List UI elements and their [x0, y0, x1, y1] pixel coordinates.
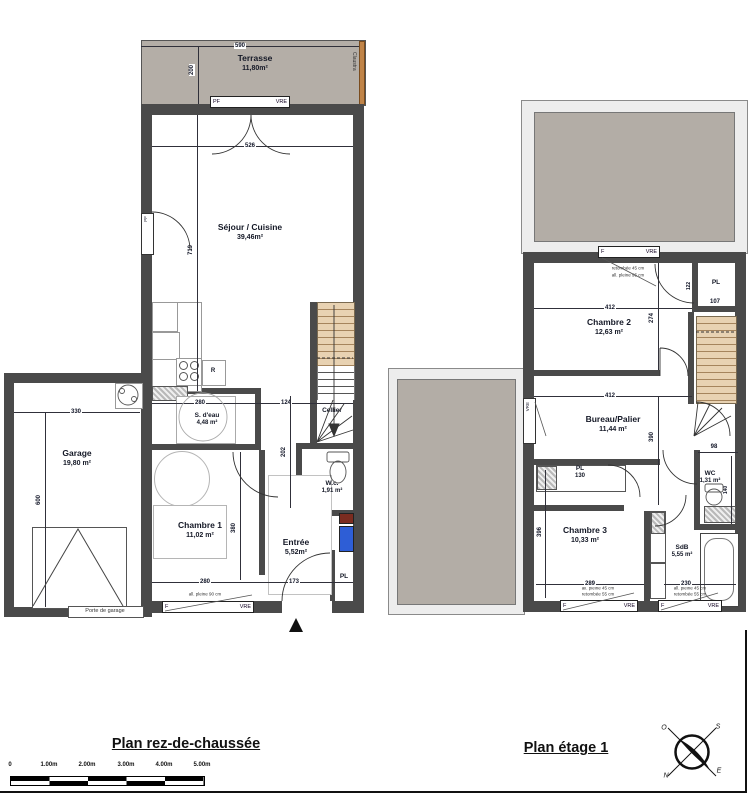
dimension-line	[197, 115, 198, 391]
room-label-chambre2: Chambre 2 12,63 m²	[587, 317, 631, 337]
window-type: F	[165, 604, 168, 610]
window-shutter: VRE	[708, 603, 719, 609]
closet-dim: 130	[575, 473, 585, 481]
room-label-cellier: Cellier	[322, 407, 342, 415]
window-chambre2: F VRE	[598, 246, 660, 258]
window-chambre3: F VRE	[560, 600, 638, 612]
sheet-border	[745, 630, 747, 793]
dimension-label: 200	[189, 64, 195, 76]
roof-slab	[397, 379, 516, 605]
dimension-label: 396	[537, 526, 543, 538]
room-label-sdb: SdB 5,55 m²	[672, 544, 693, 560]
dimension-label: 280	[194, 400, 206, 406]
water-heater-box	[115, 383, 143, 409]
room-name: Garage	[62, 448, 91, 459]
dimension-label: 98	[710, 444, 719, 450]
partition-wall	[694, 524, 740, 530]
floorplan-sheet: Claustra 590 200 Terrasse 11,80m² Cellie…	[0, 0, 754, 800]
garage-door-label: Porte de garage	[85, 608, 124, 614]
oven	[152, 302, 178, 332]
claustra-label: Claustra	[351, 52, 357, 71]
room-name: Cellier	[322, 407, 342, 415]
dimension-label: 122	[686, 281, 692, 291]
dimension-label: 719	[188, 244, 194, 256]
room-area: 5,52m²	[283, 548, 309, 557]
room-name: Terrasse	[238, 53, 273, 64]
claustra-screen	[359, 41, 365, 105]
dimension-label: 202	[281, 446, 287, 458]
room-name: Bureau/Palier	[586, 414, 641, 425]
garage-door	[32, 527, 127, 609]
scale-bar-strip	[10, 776, 205, 786]
window-sdb: F VRE	[658, 600, 722, 612]
partition-wall	[692, 263, 698, 306]
room-area: 12,63 m²	[587, 328, 631, 337]
partition-wall	[296, 443, 358, 449]
dimension-line	[152, 403, 353, 404]
compass-east-label: E	[717, 768, 722, 775]
room-name: Séjour / Cuisine	[218, 222, 282, 233]
dimension-label: 380	[231, 522, 237, 534]
closet-name: PL	[340, 573, 348, 581]
window-shutter: VRE	[646, 249, 657, 255]
room-area: 1,91 m²	[322, 488, 343, 496]
dimension-line	[240, 452, 241, 580]
room-area: 11,44 m²	[586, 425, 641, 434]
room-name: Chambre 3	[563, 525, 607, 536]
window-type: F	[661, 603, 664, 609]
room-area: 11,02 m²	[178, 531, 222, 540]
room-name: Chambre 1	[178, 520, 222, 531]
fridge-label: R	[211, 368, 215, 376]
compass-rose	[637, 707, 747, 797]
scale-tick-label: 4.00m	[155, 762, 172, 768]
dimension-label: 230	[680, 581, 692, 587]
room-area: 39,46m²	[218, 233, 282, 242]
partition-wall	[152, 444, 261, 450]
burner	[179, 372, 188, 381]
dimension-label: 390	[649, 431, 655, 443]
staircase-lower	[317, 366, 355, 400]
round-furniture	[154, 451, 210, 507]
closet-shelf	[537, 466, 557, 490]
room-label-chambre1: Chambre 1 11,02 m²	[178, 520, 222, 540]
compass-north-label: N	[663, 773, 668, 780]
window-shutter: VRE	[276, 99, 287, 105]
partition-wall	[534, 505, 624, 511]
dimension-label: 274	[649, 312, 655, 324]
duct-shaft	[650, 563, 666, 599]
partition-wall	[255, 388, 261, 450]
window-type: F	[601, 249, 604, 255]
room-label-entree: Entrée 5,52m²	[283, 537, 309, 557]
ground-floor-title: Plan rez-de-chaussée	[112, 736, 260, 752]
dimension-line	[658, 396, 659, 505]
staircase-upper	[317, 302, 355, 368]
room-area: 4,48 m²	[195, 420, 220, 428]
utility-cabinet	[339, 526, 354, 552]
room-label-chambre3: Chambre 3 10,33 m²	[563, 525, 607, 545]
window-note: retombée 55 cm	[582, 592, 615, 597]
room-label-sdeau: S. d'eau 4,48 m²	[195, 412, 220, 428]
roof-slab	[534, 112, 735, 242]
scale-tick-label: 5.00m	[193, 762, 210, 768]
dimension-line	[664, 584, 736, 585]
room-label-garage: Garage 19,80 m²	[62, 448, 91, 468]
room-area: 11,80m²	[238, 64, 273, 73]
closet-label-top: PL	[712, 279, 720, 287]
dimension-label: 526	[244, 143, 256, 149]
stair-wall	[310, 302, 317, 445]
entrance-arrow	[289, 618, 303, 632]
window-note: all. pleine 90 cm	[189, 592, 222, 597]
window-shutter: VRE	[624, 603, 635, 609]
sheet-border	[0, 791, 747, 793]
dimension-label: 107	[709, 299, 721, 305]
window-note: retombée 45 cm	[612, 266, 645, 271]
room-area: 5,55 m²	[672, 552, 693, 560]
window-note: all. pleine 95 cm	[612, 273, 645, 278]
dimension-label: 173	[288, 579, 300, 585]
window-shutter: VRE	[240, 604, 251, 610]
room-label-bureau: Bureau/Palier 11,44 m²	[586, 414, 641, 434]
window-chambre1: F VRE	[162, 601, 254, 613]
dimension-line	[152, 582, 353, 583]
dimension-line	[198, 46, 199, 104]
burner	[179, 361, 188, 370]
partition-wall	[259, 450, 265, 575]
window-type: PF	[143, 216, 148, 222]
dimension-line	[45, 412, 46, 607]
scale-tick-label: 0	[8, 762, 11, 768]
partition-wall	[534, 370, 660, 376]
room-name: Entrée	[283, 537, 309, 548]
scale-tick-label: 3.00m	[117, 762, 134, 768]
dimension-line	[698, 452, 738, 453]
kitchen-sink	[152, 332, 180, 360]
stair-wall	[688, 312, 694, 404]
room-name: Chambre 2	[587, 317, 631, 328]
compass-south-label: S	[716, 724, 721, 731]
closet-label: PL	[340, 573, 348, 581]
dimension-line	[731, 456, 732, 524]
partition-wall	[694, 450, 700, 530]
fridge-letter: R	[211, 368, 215, 376]
room-area: 19,80 m²	[62, 459, 91, 468]
scale-tick-label: 2.00m	[78, 762, 95, 768]
closet-name: PL	[712, 279, 720, 287]
room-label-wc: W.c. 1,91 m²	[322, 480, 343, 496]
window-type: F	[563, 603, 566, 609]
room-label-sejour: Séjour / Cuisine 39,46m²	[218, 222, 282, 242]
window-type: VRE	[525, 402, 530, 411]
room-label-wc: WC 1,31 m²	[700, 470, 721, 486]
bathtub-inner	[704, 538, 734, 601]
dimension-line	[545, 470, 546, 598]
dimension-line	[658, 263, 659, 370]
dimension-label: 590	[234, 43, 246, 49]
dimension-label: 289	[584, 581, 596, 587]
window-note: retombée 55 cm	[674, 592, 707, 597]
dimension-label: 140	[723, 485, 729, 495]
window-sejour: PF VRE	[210, 96, 290, 108]
dimension-label: 600	[36, 494, 42, 506]
entry-door-opening	[282, 601, 332, 613]
dimension-label: 280	[199, 579, 211, 585]
scale-tick-label: 1.00m	[40, 762, 57, 768]
room-area: 10,33 m²	[563, 536, 607, 545]
dimension-label: 412	[604, 393, 616, 399]
dimension-label: 412	[604, 305, 616, 311]
scale-bar-row	[11, 781, 204, 785]
utility-box	[339, 513, 354, 524]
dimension-line	[141, 46, 359, 47]
window-type: PF	[213, 99, 220, 105]
closet-name: PL	[575, 465, 585, 473]
closet-label-mid: PL 130	[575, 465, 585, 481]
room-label-terrasse: Terrasse 11,80m²	[238, 53, 273, 73]
room-area: 1,31 m²	[700, 478, 721, 486]
staircase	[696, 316, 737, 404]
floor1-title: Plan étage 1	[524, 740, 609, 756]
duct-hatch	[651, 512, 665, 534]
dimension-line	[290, 396, 291, 508]
partition-wall	[692, 306, 735, 312]
compass-west-label: O	[661, 725, 666, 732]
dimension-label: 330	[70, 409, 82, 415]
